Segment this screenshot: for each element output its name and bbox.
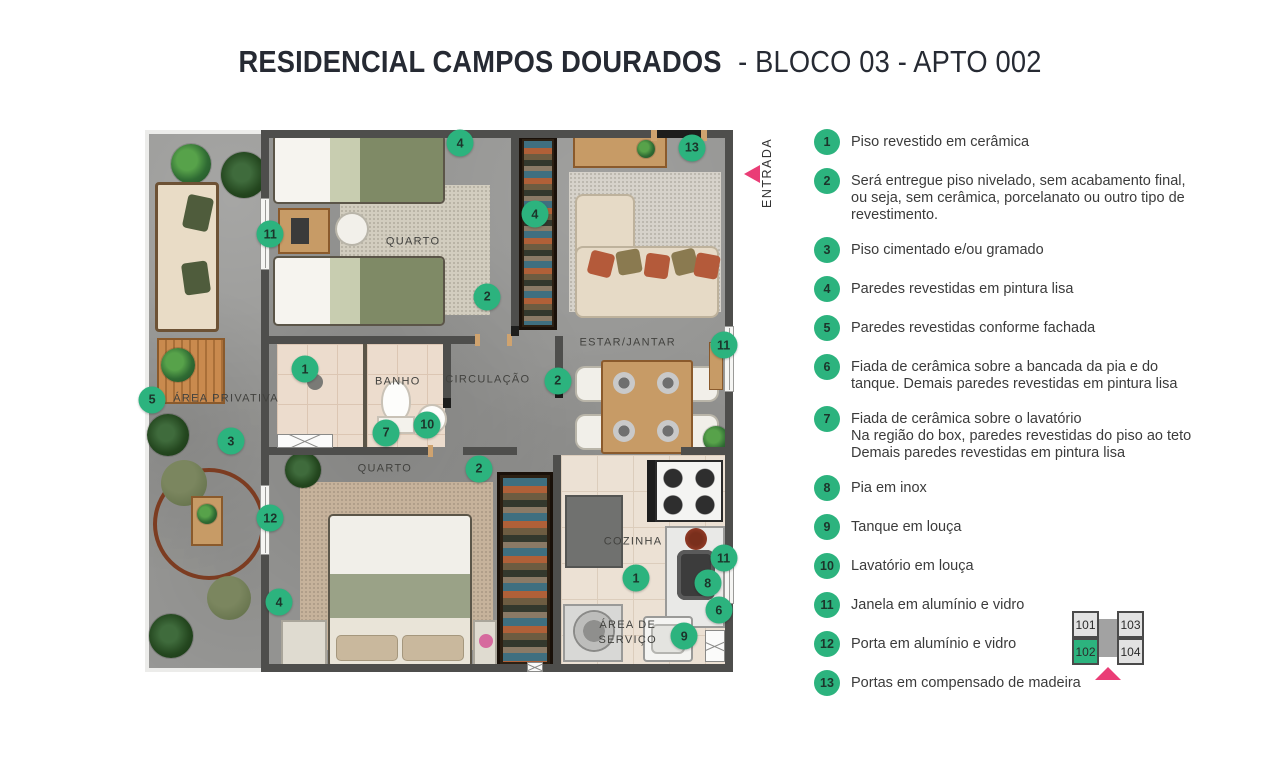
legend-text: Tanque em louça xyxy=(851,514,961,536)
floor-plan: QUARTO BANHO CIRCULAÇÃO ESTAR/JANTAR ÁRE… xyxy=(145,130,733,672)
plan-marker: 13 xyxy=(678,134,705,161)
wall-kitchen-top xyxy=(681,447,733,455)
plan-marker: 11 xyxy=(710,332,737,359)
bed-pillow xyxy=(403,636,463,660)
sofa-pillow xyxy=(693,252,721,280)
room-label-estar-jantar: ESTAR/JANTAR xyxy=(579,336,675,351)
legend-item: 13 Portas em compensado de madeira xyxy=(814,670,1209,696)
door-jamb xyxy=(475,334,480,346)
legend-badge: 3 xyxy=(814,237,840,263)
plan-marker: 8 xyxy=(694,570,721,597)
door-jamb xyxy=(428,445,433,457)
block-unit-map: 101 102 103 104 xyxy=(1072,611,1144,679)
room-label-area-servico: ÁREA DE SERVIÇO xyxy=(599,618,657,648)
desk-chair xyxy=(337,214,367,244)
legend-text: Será entregue piso nivelado, sem acabame… xyxy=(851,168,1186,224)
plan-marker: 1 xyxy=(291,356,318,383)
fruit-bowl xyxy=(685,528,707,550)
legend-item: 8 Pia em inox xyxy=(814,475,1209,501)
unit-map-core xyxy=(1097,619,1119,657)
legend-item: 6 Fiada de cerâmica sobre a bancada da p… xyxy=(814,354,1209,393)
legend-badge: 7 xyxy=(814,406,840,432)
wardrobe-clothes xyxy=(524,141,552,325)
legend-text: Paredes revestidas conforme fachada xyxy=(851,315,1095,337)
entry-arrow-icon xyxy=(744,165,760,183)
wall-bottom xyxy=(261,664,733,672)
plant xyxy=(637,140,655,158)
unit-103: 103 xyxy=(1117,611,1144,638)
plan-marker: 4 xyxy=(266,589,293,616)
page-title-unit: - BLOCO 03 - APTO 002 xyxy=(738,44,1041,79)
sofa-pillow xyxy=(643,252,670,279)
bed-single xyxy=(275,258,443,324)
room-label-quarto-2: QUARTO xyxy=(358,461,412,476)
plant xyxy=(197,504,217,524)
pouf xyxy=(207,576,251,620)
dining-table xyxy=(601,360,693,454)
room-label-cozinha: COZINHA xyxy=(604,534,663,549)
legend-item: 5 Paredes revestidas conforme fachada xyxy=(814,315,1209,341)
legend-text: Lavatório em louça xyxy=(851,553,974,575)
room-label-banho: BANHO xyxy=(375,375,421,390)
stove-panel xyxy=(647,460,655,522)
shower-divider xyxy=(363,344,367,447)
plan-marker: 1 xyxy=(622,565,649,592)
legend-item: 9 Tanque em louça xyxy=(814,514,1209,540)
plan-marker: 4 xyxy=(447,130,474,157)
legend-badge: 1 xyxy=(814,129,840,155)
legend-item: 7 Fiada de cerâmica sobre o lavatório Na… xyxy=(814,406,1209,462)
plate xyxy=(613,372,635,394)
plate xyxy=(657,372,679,394)
unit-101: 101 xyxy=(1072,611,1099,638)
unit-102-highlighted: 102 xyxy=(1072,638,1099,665)
flower xyxy=(479,634,493,648)
nightstand xyxy=(283,622,325,666)
wall-bathroom-bottom xyxy=(269,447,429,455)
legend-item: 2 Será entregue piso nivelado, sem acaba… xyxy=(814,168,1209,224)
legend-badge: 6 xyxy=(814,354,840,380)
bed-pillow xyxy=(337,636,397,660)
plate xyxy=(657,420,679,442)
legend-badge: 2 xyxy=(814,168,840,194)
legend-text: Porta em alumínio e vidro xyxy=(851,631,1016,653)
page-title: RESIDENCIAL CAMPOS DOURADOS - BLOCO 03 -… xyxy=(77,44,1203,80)
sofa-cushion xyxy=(181,260,211,295)
wall-bedroom1-living xyxy=(511,130,519,336)
plant xyxy=(171,144,211,184)
legend-text: Pia em inox xyxy=(851,475,927,497)
wall-kitchen-left xyxy=(553,455,561,664)
wardrobe-clothes xyxy=(503,478,547,662)
legend-text: Janela em alumínio e vidro xyxy=(851,592,1024,614)
plan-marker: 12 xyxy=(257,505,284,532)
plan-marker: 5 xyxy=(139,386,166,413)
plan-marker: 2 xyxy=(474,283,501,310)
plan-marker: 6 xyxy=(705,597,732,624)
window-bathroom xyxy=(277,434,333,448)
legend-badge: 8 xyxy=(814,475,840,501)
legend-badge: 4 xyxy=(814,276,840,302)
plant xyxy=(285,452,321,488)
unit-104: 104 xyxy=(1117,638,1144,665)
legend-text: Piso revestido em cerâmica xyxy=(851,129,1029,151)
legend-text: Fiada de cerâmica sobre a bancada da pia… xyxy=(851,354,1177,393)
room-label-circulacao: CIRCULAÇÃO xyxy=(445,372,530,387)
plan-marker: 11 xyxy=(710,545,737,572)
wall-end-accent xyxy=(443,398,451,408)
legend-badge: 11 xyxy=(814,592,840,618)
legend-item: 1 Piso revestido em cerâmica xyxy=(814,129,1209,155)
legend-badge: 5 xyxy=(814,315,840,341)
plan-marker: 10 xyxy=(414,411,441,438)
plan-marker: 2 xyxy=(465,455,492,482)
plan-marker: 4 xyxy=(521,201,548,228)
fridge xyxy=(565,495,623,568)
plant xyxy=(149,614,193,658)
plan-marker: 2 xyxy=(544,367,571,394)
legend-badge: 13 xyxy=(814,670,840,696)
room-label-quarto-1: QUARTO xyxy=(386,235,440,250)
plan-marker: 9 xyxy=(671,623,698,650)
plate xyxy=(613,420,635,442)
room-label-area-privativa: ÁREA PRIVATIVA xyxy=(173,391,279,406)
bed-single xyxy=(275,136,443,202)
plant xyxy=(147,414,189,456)
plan-marker: 7 xyxy=(373,419,400,446)
wall-bedroom2-top xyxy=(463,447,517,455)
legend-text: Piso cimentado e/ou gramado xyxy=(851,237,1044,259)
entry-label: ENTRADA xyxy=(760,142,774,208)
legend-text: Fiada de cerâmica sobre o lavatório Na r… xyxy=(851,406,1191,462)
legend-badge: 10 xyxy=(814,553,840,579)
unit-map-arrow-icon xyxy=(1095,667,1121,680)
vent-service xyxy=(527,662,543,672)
legend-item: 11 Janela em alumínio e vidro xyxy=(814,592,1209,618)
door-jamb xyxy=(651,130,657,141)
legend-item: 10 Lavatório em louça xyxy=(814,553,1209,579)
legend-item: 12 Porta em alumínio e vidro xyxy=(814,631,1209,657)
legend-text: Portas em compensado de madeira xyxy=(851,670,1081,692)
sofa-pillow xyxy=(615,248,643,276)
wall-end-accent xyxy=(511,326,519,336)
legend-text: Paredes revestidas em pintura lisa xyxy=(851,276,1073,298)
legend-item: 4 Paredes revestidas em pintura lisa xyxy=(814,276,1209,302)
legend: 1 Piso revestido em cerâmica 2 Será entr… xyxy=(814,129,1209,696)
legend-item: 3 Piso cimentado e/ou gramado xyxy=(814,237,1209,263)
plant xyxy=(161,348,195,382)
laptop xyxy=(291,218,309,244)
plan-marker: 11 xyxy=(257,221,284,248)
page-title-project: RESIDENCIAL CAMPOS DOURADOS xyxy=(238,44,721,79)
plan-marker: 3 xyxy=(217,428,244,455)
legend-badge: 9 xyxy=(814,514,840,540)
legend-badge: 12 xyxy=(814,631,840,657)
stove xyxy=(655,460,723,522)
window-service xyxy=(705,630,725,662)
